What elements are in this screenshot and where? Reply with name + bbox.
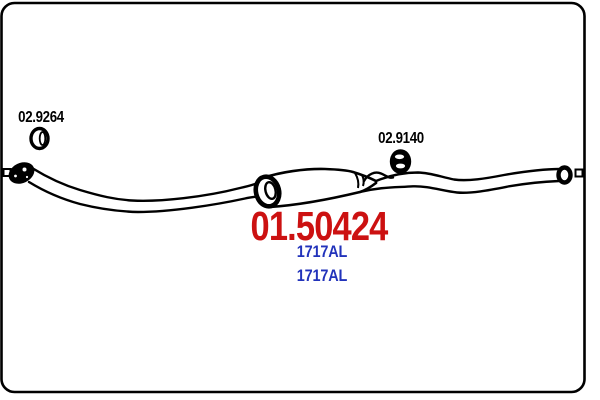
hanger-hole-top — [395, 155, 404, 160]
front-pipe — [29, 168, 257, 212]
flange-highlight — [23, 168, 27, 172]
flange-highlight — [14, 175, 17, 178]
hanger-part-ref-label: 02.9140 — [372, 130, 430, 147]
part-diagram-panel: 02.9264 02.9140 01.50424 1717AL 1717AL — [0, 0, 600, 400]
pipe-end-square — [576, 170, 583, 177]
front-pipe-top-line — [32, 168, 255, 201]
flange-highlight — [26, 176, 28, 178]
pipe-end-tip — [559, 168, 571, 183]
gasket-ring-icon — [31, 129, 48, 149]
rubber-hanger-icon — [390, 149, 411, 174]
hanger-hole-bottom — [396, 164, 405, 169]
gasket-part-ref-label: 02.9264 — [12, 109, 70, 126]
front-pipe-bottom-line — [29, 182, 257, 212]
pipe-end — [559, 168, 583, 183]
exhaust-system-drawing — [0, 0, 600, 400]
main-part-number-label: 01.50424 — [235, 205, 403, 247]
oe-number-label-1: 1717AL — [280, 243, 365, 261]
hanger-rubber-block — [390, 149, 411, 174]
tail-pipe — [360, 169, 560, 193]
tail-pipe-bottom-line — [360, 181, 559, 193]
oe-number-label-2: 1717AL — [280, 267, 365, 285]
